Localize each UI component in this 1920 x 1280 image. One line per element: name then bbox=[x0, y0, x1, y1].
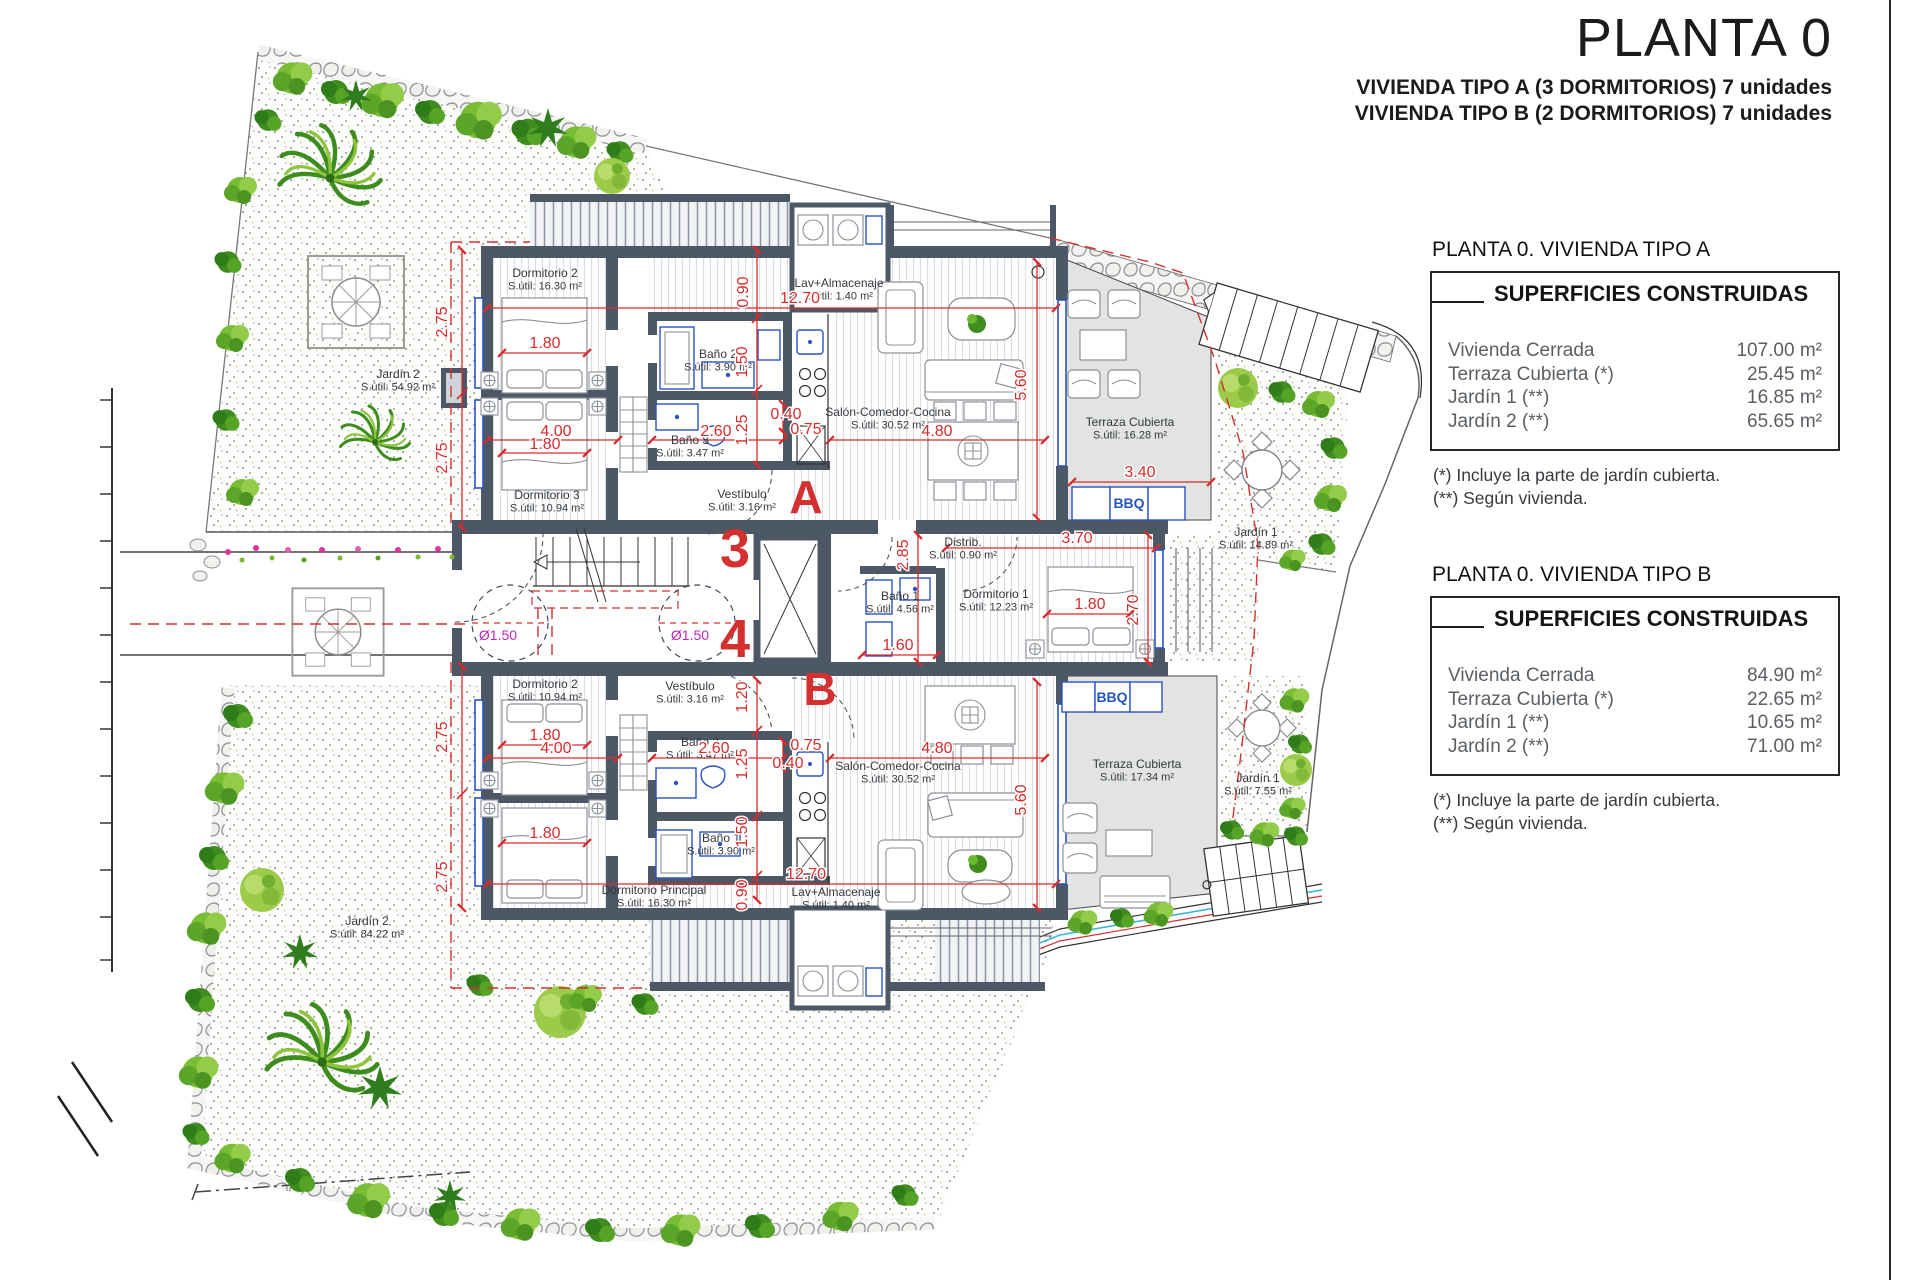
panel-a-header: SUPERFICIES CONSTRUIDAS bbox=[1494, 281, 1808, 307]
dimension-label: 1.20 bbox=[734, 681, 751, 712]
dimension-label: 0.90 bbox=[735, 276, 752, 307]
panel-vivienda-a: PLANTA 0. VIVIENDA TIPO A SUPERFICIES CO… bbox=[1430, 238, 1840, 509]
room-label: Dormitorio 3S.útil: 10.94 m² bbox=[510, 488, 584, 515]
bbq-label: BBQ bbox=[1096, 689, 1127, 705]
dimension-label: 2.60 bbox=[698, 740, 729, 757]
room-label: Dormitorio 2S.útil: 16.30 m² bbox=[508, 266, 582, 293]
panel-b-rows: Vivienda Cerrada84.90 m² Terraza Cubiert… bbox=[1448, 664, 1822, 758]
header-rule bbox=[1432, 626, 1484, 628]
panel-a-box: SUPERFICIES CONSTRUIDAS Vivienda Cerrada… bbox=[1430, 271, 1840, 451]
dimension-label: 5.60 bbox=[1013, 369, 1030, 400]
turning-circle-label: Ø1.50 bbox=[479, 627, 517, 643]
dimension-label: 0.75 bbox=[790, 421, 821, 438]
subtitle-type-b: VIVIENDA TIPO B (2 DORMITORIOS) 7 unidad… bbox=[1232, 101, 1832, 127]
dimension-label: 2.75 bbox=[434, 861, 451, 892]
dimension-label: 3.40 bbox=[1124, 464, 1155, 481]
dimension-label: 3.70 bbox=[1061, 530, 1092, 547]
entry-walkway bbox=[120, 552, 481, 655]
subtitle-type-a: VIVIENDA TIPO A (3 DORMITORIOS) 7 unidad… bbox=[1232, 75, 1832, 101]
header-rule bbox=[1432, 301, 1484, 303]
elevator bbox=[751, 537, 821, 661]
flower-bed bbox=[190, 539, 455, 581]
dimension-label: 4.80 bbox=[921, 423, 952, 440]
surface-row: Jardín 1 (**)10.65 m² bbox=[1448, 711, 1822, 735]
dimension-label: 0.90 bbox=[734, 879, 751, 910]
stairs-bottom-right bbox=[1198, 836, 1308, 918]
title-block: PLANTA 0 VIVIENDA TIPO A (3 DORMITORIOS)… bbox=[1232, 10, 1832, 127]
room-label: Lav+AlmacenajeS.útil: 1.40 m² bbox=[791, 885, 880, 912]
dimension-label: 0.75 bbox=[790, 737, 821, 754]
surface-row: Jardín 2 (**)71.00 m² bbox=[1448, 735, 1822, 759]
panel-b-header: SUPERFICIES CONSTRUIDAS bbox=[1494, 606, 1808, 632]
surface-row: Terraza Cubierta (*)25.45 m² bbox=[1448, 363, 1822, 387]
room-label: Dormitorio PrincipalS.útil: 16.30 m² bbox=[602, 883, 707, 910]
unit-letter: 3 bbox=[720, 519, 750, 579]
dimension-label: 2.75 bbox=[434, 721, 451, 752]
dimension-label: 1.80 bbox=[529, 825, 560, 842]
room-label: Terraza CubiertaS.útil: 16.28 m² bbox=[1086, 415, 1175, 442]
panel-a-title: PLANTA 0. VIVIENDA TIPO A bbox=[1432, 238, 1840, 262]
dimension-label: 1.80 bbox=[1074, 596, 1105, 613]
surface-row: Terraza Cubierta (*)22.65 m² bbox=[1448, 688, 1822, 712]
dimension-label: 2.60 bbox=[700, 423, 731, 440]
room-label: VestíbuloS.útil: 3.16 m² bbox=[708, 487, 776, 514]
sheet-border bbox=[1889, 0, 1891, 1280]
panel-vivienda-b: PLANTA 0. VIVIENDA TIPO B SUPERFICIES CO… bbox=[1430, 563, 1840, 834]
surface-row: Vivienda Cerrada84.90 m² bbox=[1448, 664, 1822, 688]
dimension-label: 2.70 bbox=[1125, 594, 1142, 625]
panel-b-box: SUPERFICIES CONSTRUIDAS Vivienda Cerrada… bbox=[1430, 596, 1840, 776]
porch-bottom bbox=[650, 920, 790, 984]
dimension-label: 1.25 bbox=[734, 414, 751, 445]
dimension-label: 4.00 bbox=[540, 740, 571, 757]
bbq-label: BBQ bbox=[1113, 495, 1144, 511]
room-label: Terraza CubiertaS.útil: 17.34 m² bbox=[1093, 757, 1182, 784]
sheet-title: PLANTA 0 bbox=[1232, 10, 1832, 67]
dimension-label: 1.50 bbox=[734, 816, 751, 847]
dimension-label: 1.25 bbox=[734, 748, 751, 779]
dimension-label: 0.40 bbox=[772, 755, 803, 772]
dimension-label: 2.85 bbox=[895, 539, 912, 570]
building bbox=[441, 194, 1421, 1008]
dimension-label: 1.80 bbox=[529, 436, 560, 453]
dimension-label: 1.50 bbox=[734, 346, 751, 377]
panel-a-notes: (*) Incluye la parte de jardín cubierta.… bbox=[1433, 464, 1840, 509]
panel-b-notes: (*) Incluye la parte de jardín cubierta.… bbox=[1433, 789, 1840, 834]
porch-top bbox=[530, 202, 790, 246]
dimension-label: 4.80 bbox=[921, 740, 952, 757]
unit-letter: B bbox=[803, 663, 836, 715]
dimension-label: 1.80 bbox=[529, 335, 560, 352]
boundary-marks bbox=[58, 1062, 112, 1156]
room-label: Dormitorio 1S.útil: 12.23 m² bbox=[959, 587, 1033, 614]
dimension-label: 5.60 bbox=[1013, 784, 1030, 815]
floor-plan-sheet: Dormitorio 2S.útil: 16.30 m²Lav+Almacena… bbox=[0, 0, 1920, 1280]
dimension-label: 2.75 bbox=[434, 442, 451, 473]
dimension-label: 1.60 bbox=[882, 637, 913, 654]
dimension-label: 2.75 bbox=[434, 306, 451, 337]
surface-row: Vivienda Cerrada107.00 m² bbox=[1448, 339, 1822, 363]
dimension-label: 12.70 bbox=[786, 866, 826, 883]
unit-letter: A bbox=[789, 471, 822, 523]
surface-row: Jardín 2 (**)65.65 m² bbox=[1448, 410, 1822, 434]
surface-row: Jardín 1 (**)16.85 m² bbox=[1448, 386, 1822, 410]
unit-letter: 4 bbox=[720, 609, 750, 669]
room-label: Dormitorio 2S.útil: 10.94 m² bbox=[508, 677, 582, 704]
dimension-label: 12.70 bbox=[780, 290, 820, 307]
turning-circle-label: Ø1.50 bbox=[671, 627, 709, 643]
panel-b-title: PLANTA 0. VIVIENDA TIPO B bbox=[1432, 563, 1840, 587]
room-label: VestíbuloS.útil: 3.16 m² bbox=[656, 679, 724, 706]
panel-a-rows: Vivienda Cerrada107.00 m² Terraza Cubier… bbox=[1448, 339, 1822, 433]
